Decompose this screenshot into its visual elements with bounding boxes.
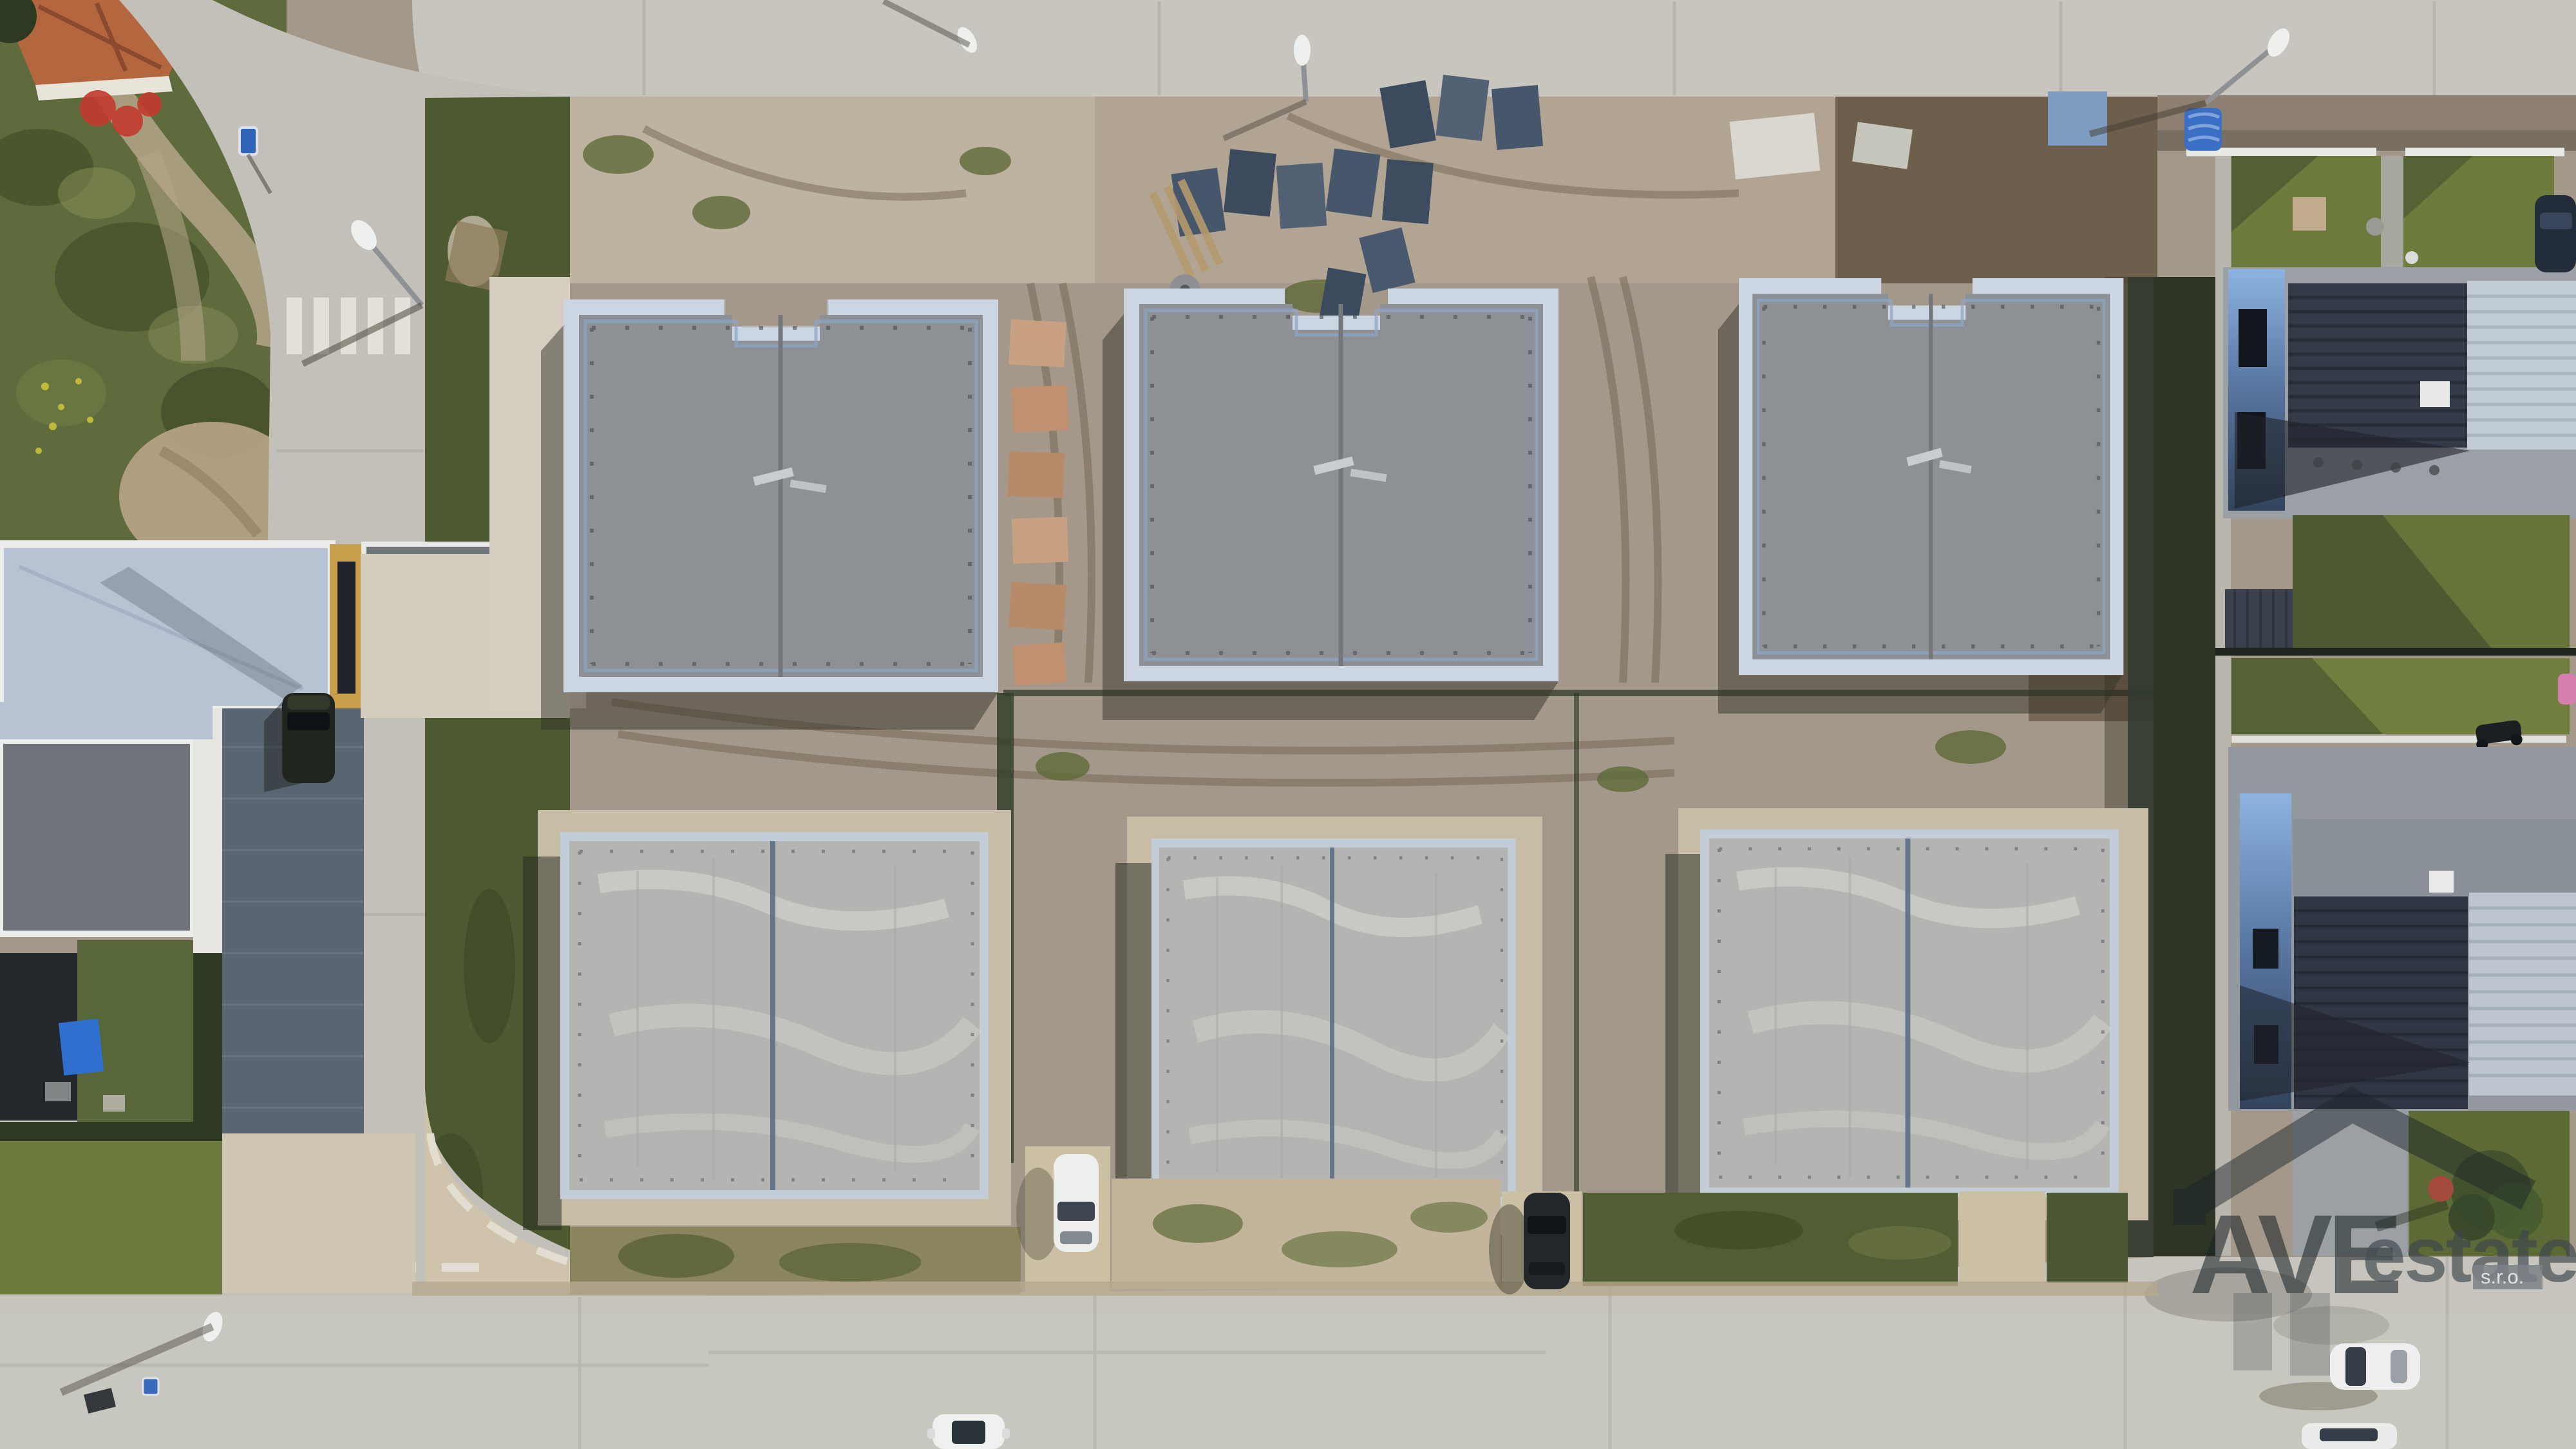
car-pink-cropped	[2558, 674, 2576, 705]
legal-badge: s.r.o.	[2473, 1265, 2543, 1289]
house-right-1	[2223, 267, 2576, 518]
white-pallet	[1730, 113, 1821, 179]
duplex-2	[1124, 289, 1558, 681]
duplex-3	[1739, 278, 2123, 675]
building-shadow	[1665, 854, 1701, 1224]
legal-text: s.r.o.	[2481, 1265, 2524, 1288]
roof-dark	[2288, 283, 2467, 448]
roof-light	[2469, 893, 2576, 1095]
estate-hedge	[0, 1122, 222, 1141]
duplex-row2	[523, 808, 2148, 1236]
duplex-6	[1700, 829, 2119, 1197]
duplex-1	[563, 299, 998, 692]
duplex-row1	[541, 278, 2123, 730]
estate-dark-roof	[0, 741, 193, 934]
construction-site	[361, 75, 2157, 1296]
right-neighborhood	[2154, 95, 2576, 1256]
house-right-2	[2228, 747, 2576, 1111]
chimney	[2429, 871, 2454, 893]
driveway	[1959, 1191, 2045, 1285]
backyard-lawns	[2231, 156, 2554, 268]
brand-suffix: estate	[2362, 1211, 2576, 1298]
car-dark-blue-cropped	[2535, 195, 2576, 272]
bottom-haze	[0, 1314, 2576, 1449]
chimney	[2420, 381, 2450, 407]
duplex-4	[560, 832, 989, 1199]
red-bush	[2428, 1176, 2454, 1202]
building-shadow	[523, 857, 562, 1230]
duplex-5	[1151, 838, 1515, 1206]
roof-light	[2467, 281, 2576, 450]
blue-tarp	[59, 1019, 104, 1075]
top-road	[412, 0, 2576, 97]
aerial-photo: AVE estate s.r.o.	[0, 0, 2576, 1449]
